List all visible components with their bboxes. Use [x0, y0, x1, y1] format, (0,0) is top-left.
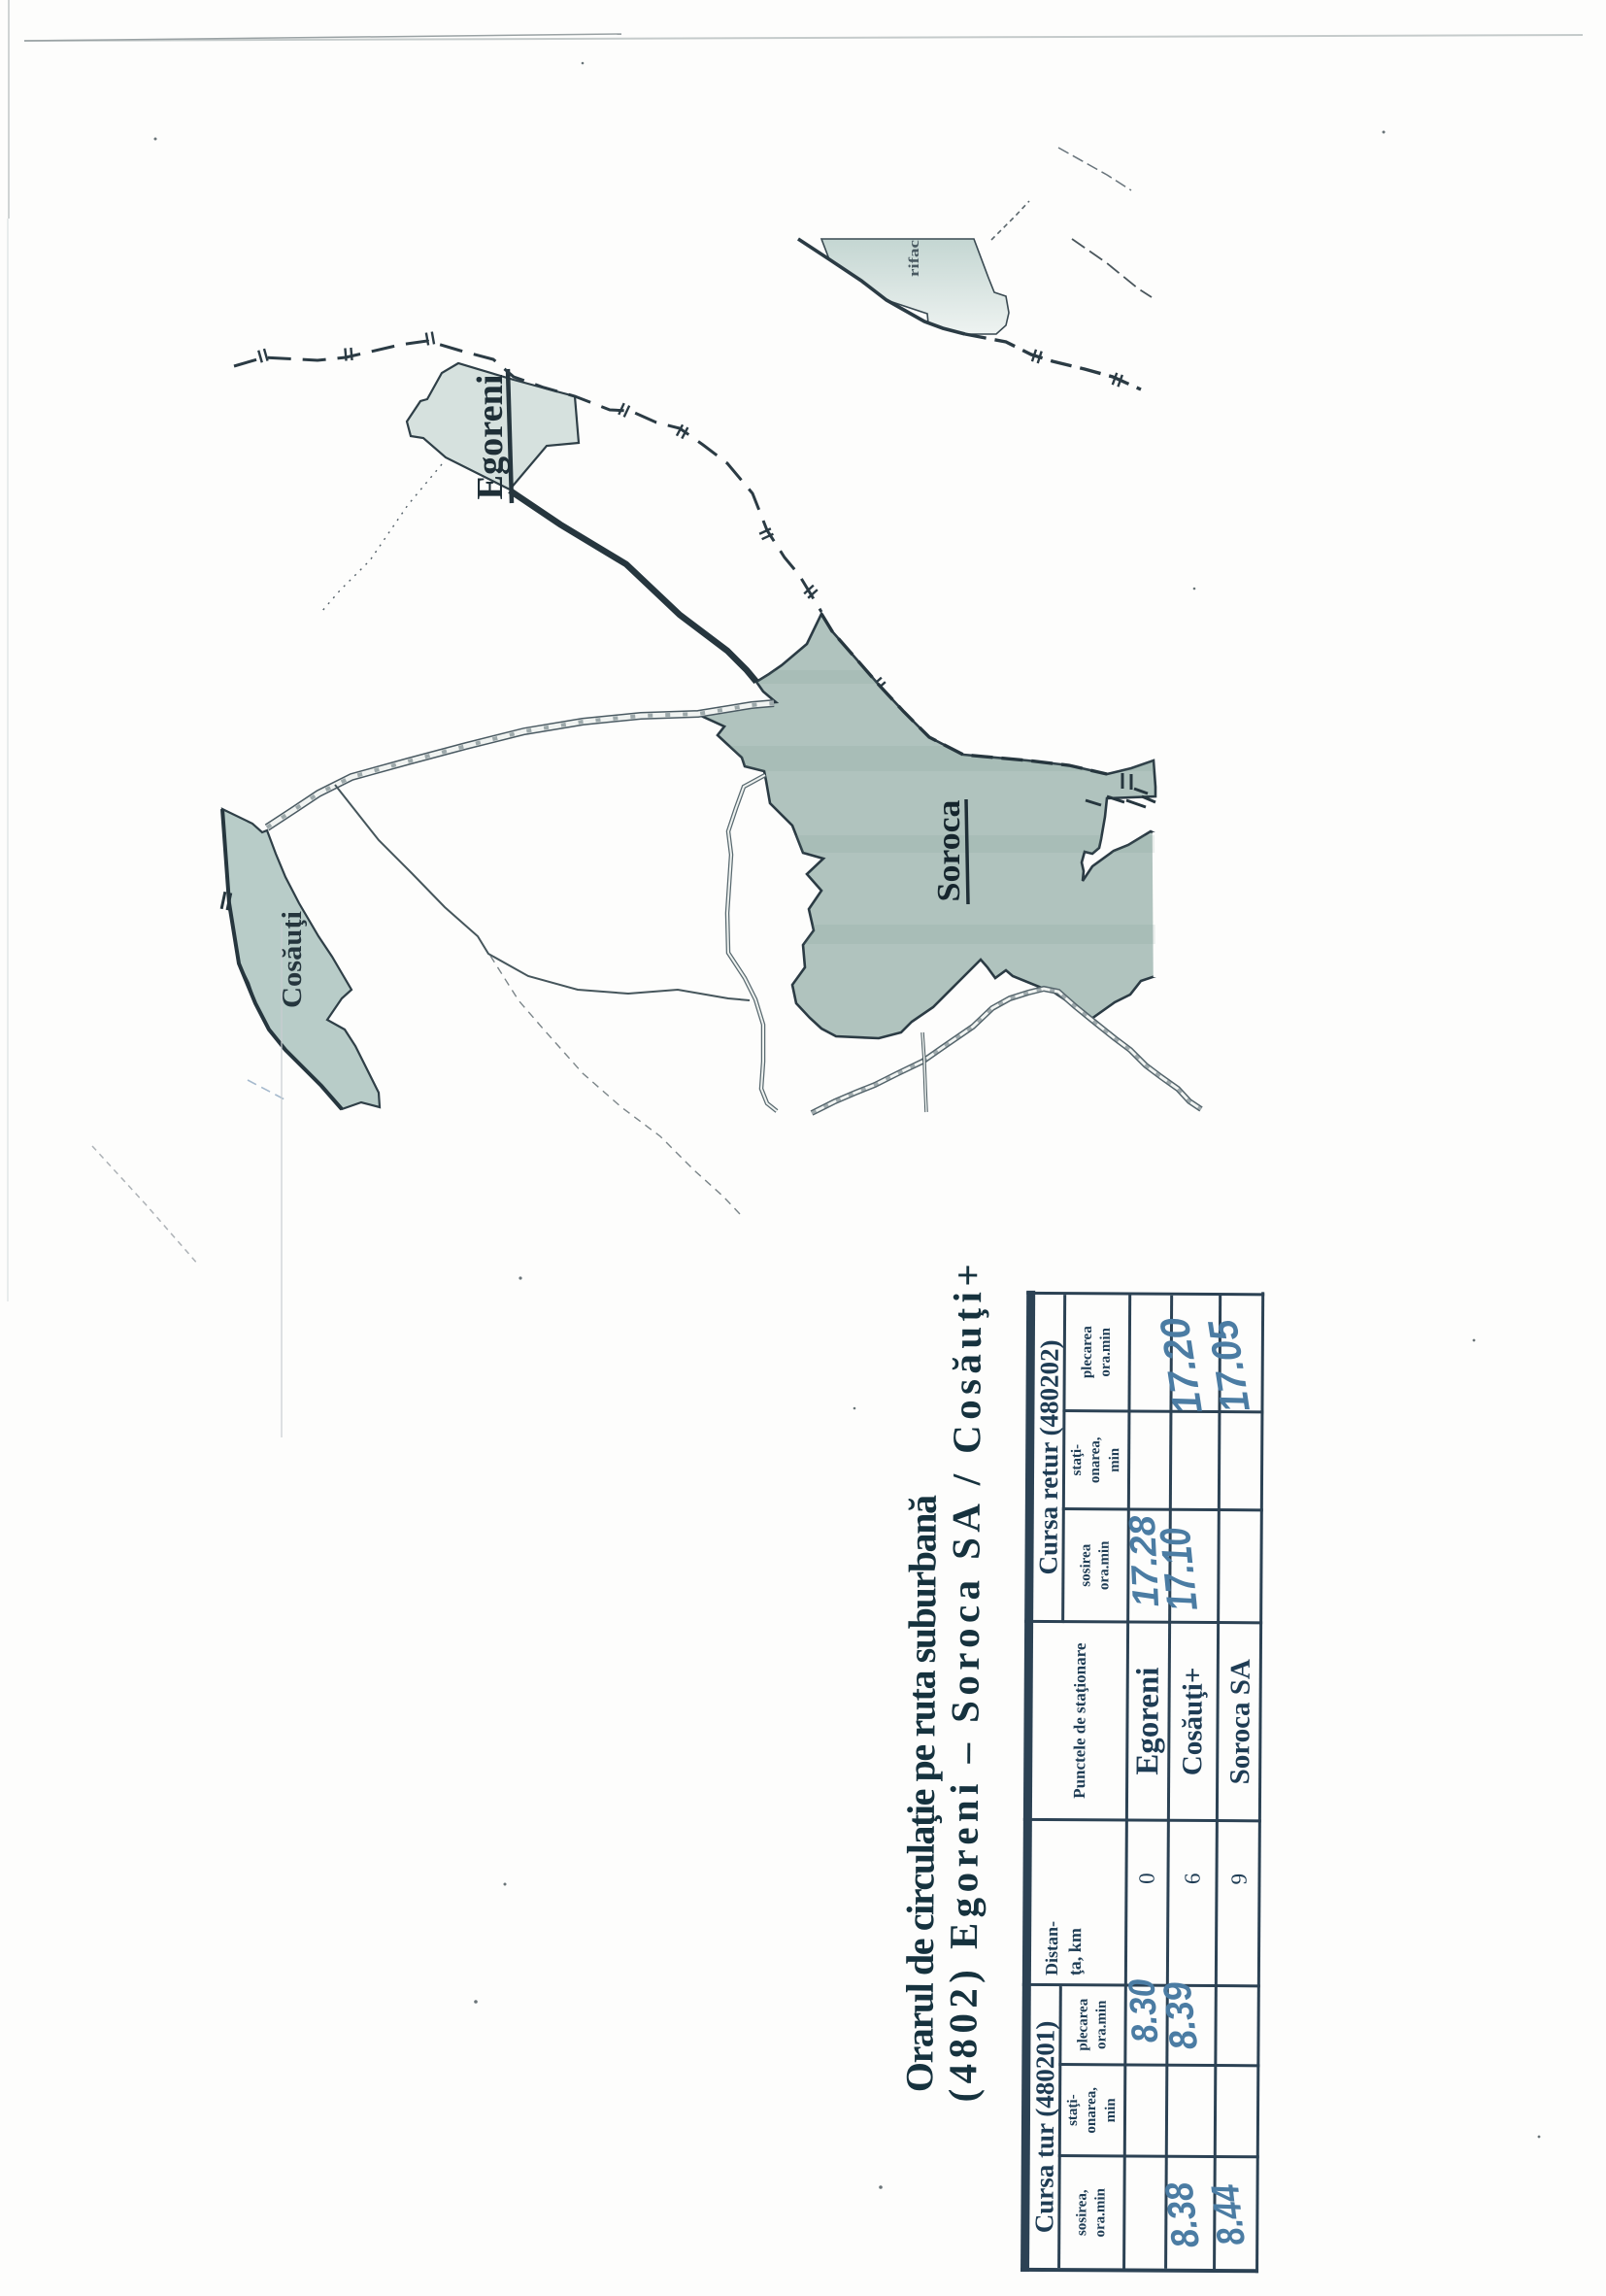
svg-text:Soroca: Soroca: [931, 800, 967, 902]
svg-text:Egoreni: Egoreni: [470, 375, 511, 500]
svg-text:rifac: rifac: [907, 240, 922, 277]
svg-text:Cosăuţi: Cosăuţi: [278, 911, 308, 1008]
